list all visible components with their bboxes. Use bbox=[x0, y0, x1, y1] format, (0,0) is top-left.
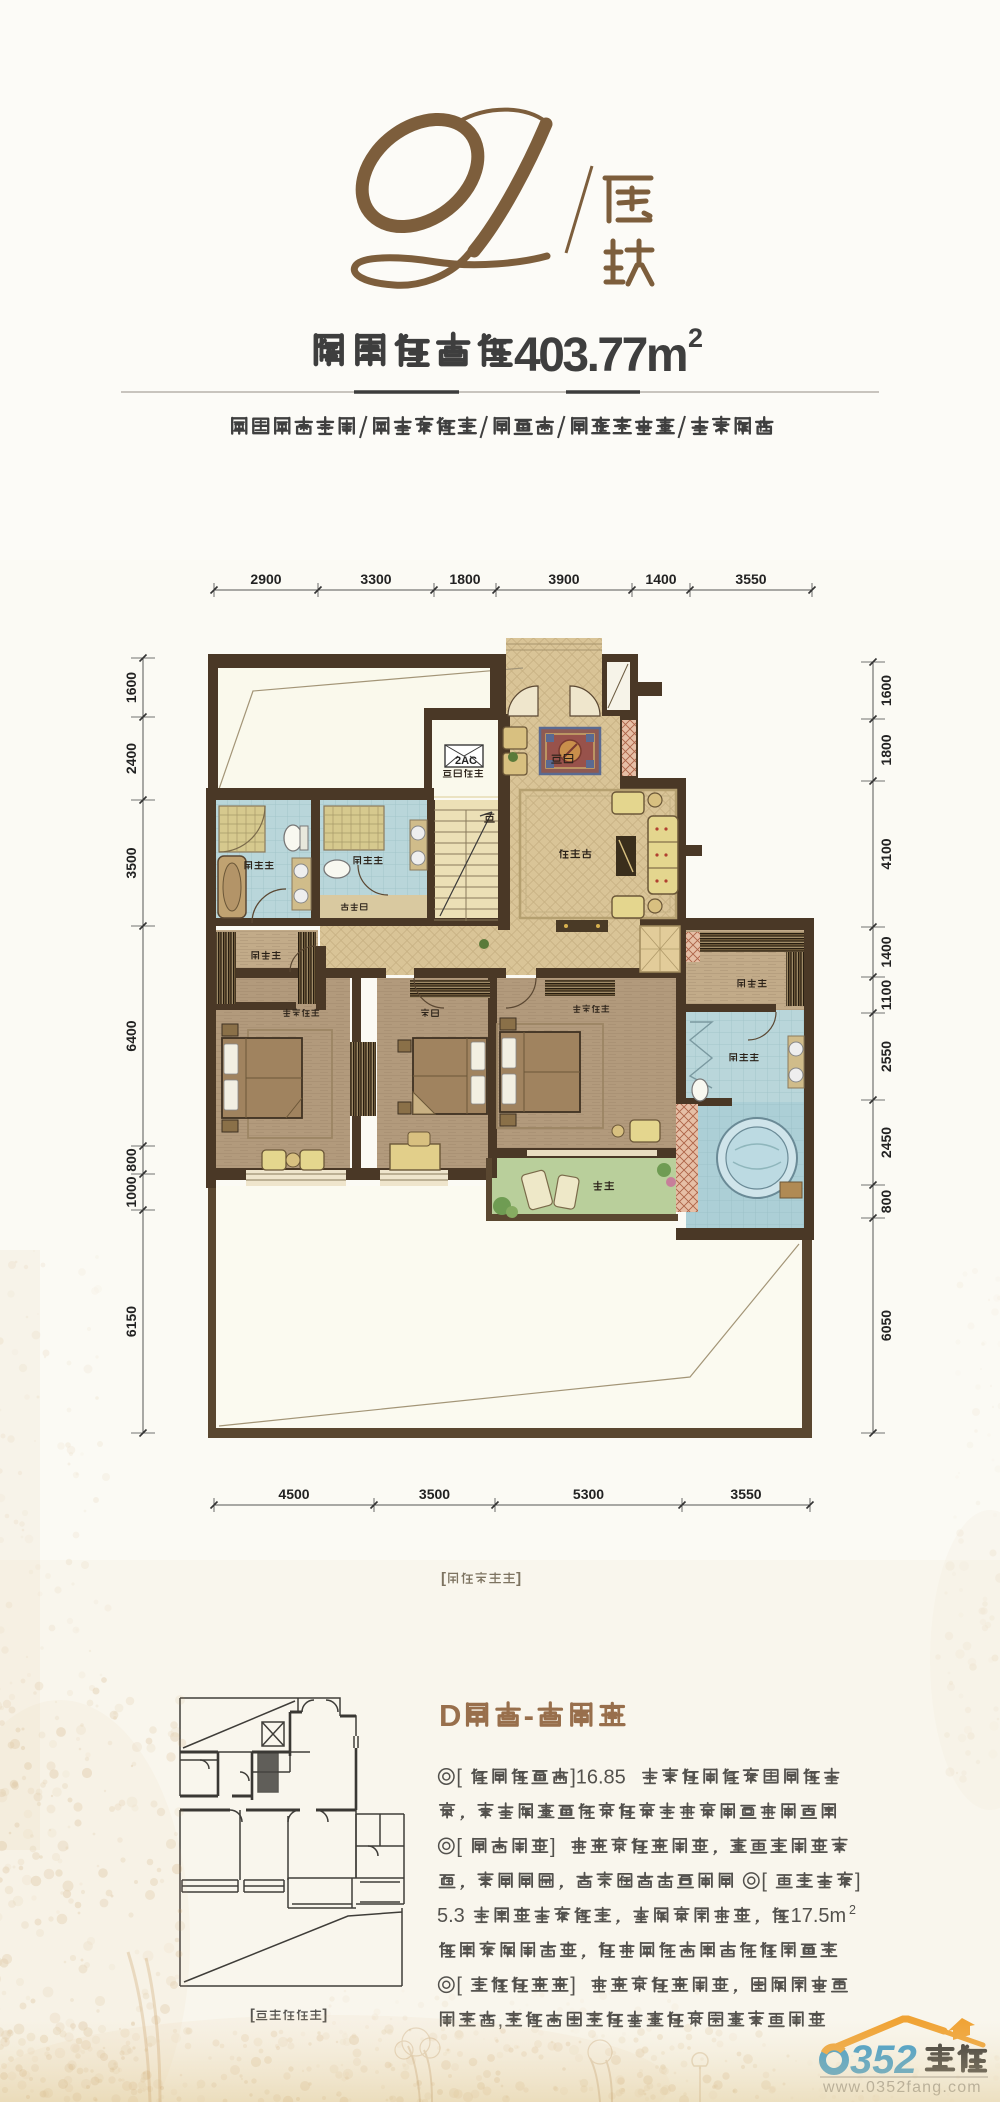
svg-text:3500: 3500 bbox=[123, 847, 139, 878]
svg-text:2450: 2450 bbox=[878, 1127, 894, 1158]
svg-text:1400: 1400 bbox=[645, 571, 676, 587]
svg-text:6050: 6050 bbox=[878, 1310, 894, 1341]
svg-text:5300: 5300 bbox=[573, 1486, 604, 1502]
svg-text:2550: 2550 bbox=[878, 1041, 894, 1072]
svg-text:2AC: 2AC bbox=[455, 755, 477, 767]
svg-text:4100: 4100 bbox=[878, 838, 894, 869]
svg-text:1400: 1400 bbox=[878, 936, 894, 967]
svg-text:800: 800 bbox=[878, 1190, 894, 1214]
svg-text:1800: 1800 bbox=[878, 734, 894, 765]
svg-text:3900: 3900 bbox=[548, 571, 579, 587]
svg-text:2: 2 bbox=[688, 323, 703, 353]
svg-text:1800: 1800 bbox=[449, 571, 480, 587]
svg-text:6400: 6400 bbox=[123, 1020, 139, 1051]
svg-text:4500: 4500 bbox=[278, 1486, 309, 1502]
svg-text:3300: 3300 bbox=[360, 571, 391, 587]
svg-text:1000: 1000 bbox=[123, 1176, 139, 1207]
svg-text:800: 800 bbox=[123, 1148, 139, 1172]
svg-text:1600: 1600 bbox=[878, 675, 894, 706]
svg-text:3550: 3550 bbox=[735, 571, 766, 587]
svg-text:2900: 2900 bbox=[250, 571, 281, 587]
svg-text:3550: 3550 bbox=[730, 1486, 761, 1502]
svg-text:2400: 2400 bbox=[123, 743, 139, 774]
svg-text:6150: 6150 bbox=[123, 1306, 139, 1337]
svg-text:1600: 1600 bbox=[123, 672, 139, 703]
svg-text:3500: 3500 bbox=[419, 1486, 450, 1502]
svg-text:403.77m: 403.77m bbox=[514, 329, 686, 382]
svg-text:1100: 1100 bbox=[878, 980, 894, 1011]
